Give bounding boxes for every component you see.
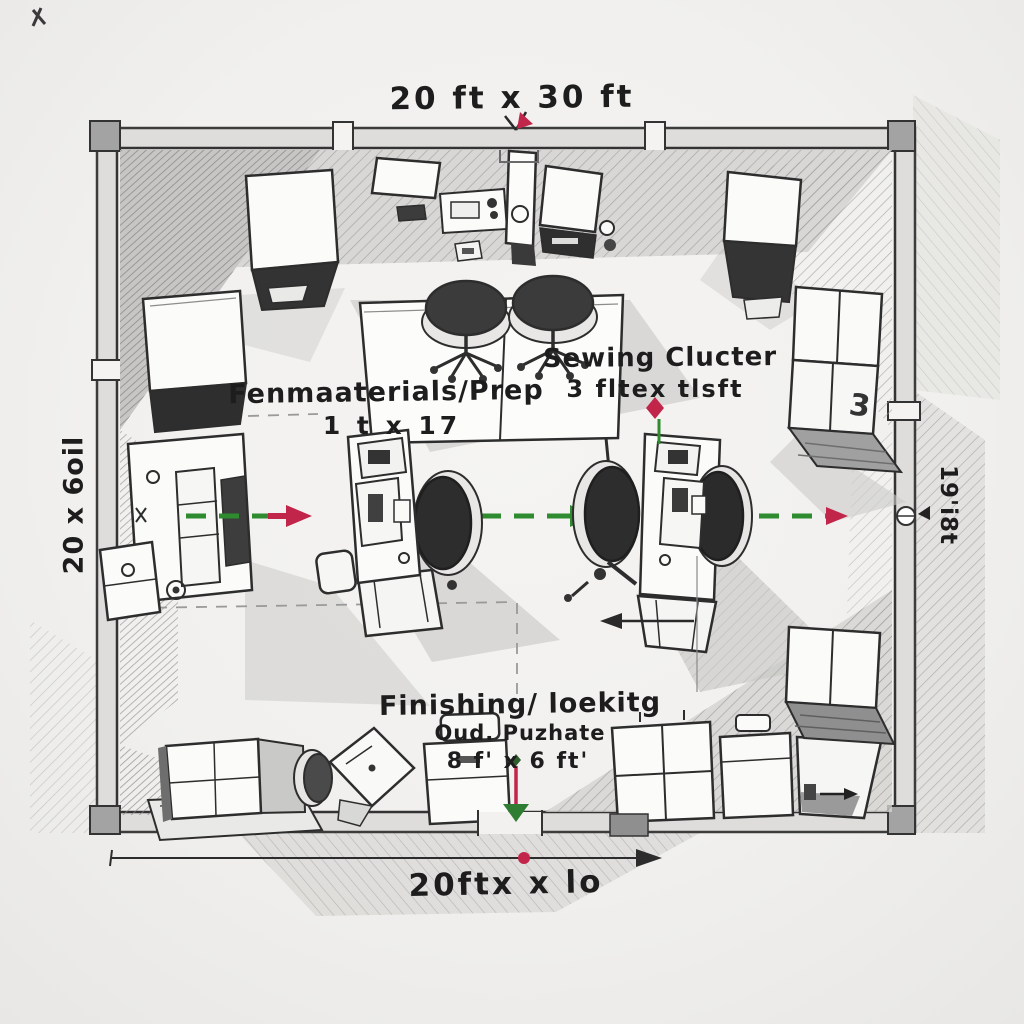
- zone-label-finishing-size: 8 f' x 6 ft': [447, 749, 590, 774]
- flow-arrow-red-left: [286, 505, 312, 527]
- box-grid-bottom: [612, 710, 714, 822]
- sewing-chair-left: [415, 477, 471, 569]
- sewing-chair-right: [585, 467, 639, 561]
- cabinet-top-left: [246, 170, 338, 310]
- keyboard: [455, 241, 482, 261]
- zone-label-finishing-subtitle: Oud. Puzhate: [434, 721, 605, 745]
- dimension-label-left: 20 x 6oil: [59, 436, 90, 575]
- wall-post-left: [92, 360, 124, 380]
- wall-post-top-1: [333, 122, 353, 154]
- cabinet-top-right: [724, 172, 801, 319]
- zone-label-materials-size: 1 t x 17: [323, 411, 461, 440]
- zone-label-finishing-title: Finishing/ loekitg: [379, 687, 661, 722]
- wall-post-right: [888, 402, 920, 420]
- zone-label-sewing-title: Sewing Clucter: [543, 342, 778, 374]
- wall-post-corner-br: [888, 806, 915, 834]
- wall-post-top-2: [645, 122, 665, 154]
- wall-post-corner-tl: [90, 121, 120, 151]
- dimension-label-right: 19'i8t: [935, 465, 961, 545]
- stool-left: [315, 550, 356, 595]
- zone-label-sewing-size: 3 fltex tlsft: [566, 375, 743, 403]
- floor-plan-sketch: 3: [0, 0, 1024, 1024]
- zone-label-materials-title: Fenmaaterials/Prep: [228, 375, 544, 410]
- door-threshold: [610, 814, 648, 836]
- box-stack-bottom-right: [786, 627, 894, 744]
- wall-post-corner-tr: [888, 121, 915, 151]
- cutting-table-left: [143, 291, 246, 432]
- printer-unit: [440, 189, 507, 233]
- wall-post-corner-bl: [90, 806, 120, 834]
- dimension-label-bottom: 20ftx x lo: [408, 864, 604, 904]
- dimension-label-top: 20 ft x 30 ft: [389, 79, 634, 118]
